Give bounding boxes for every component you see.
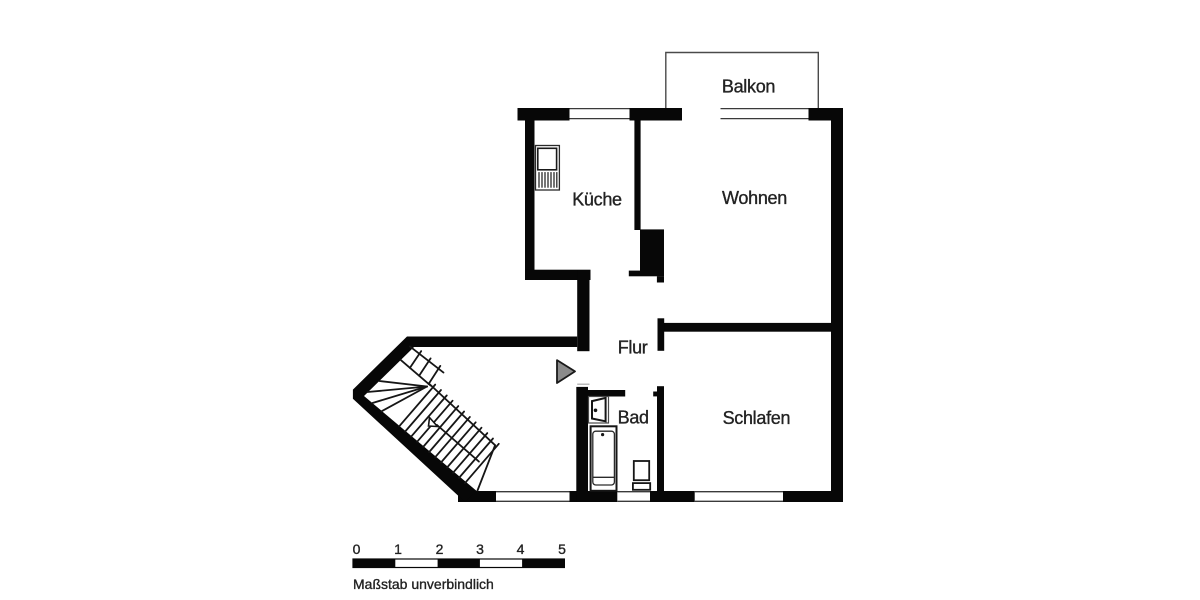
svg-text:0: 0: [353, 541, 361, 557]
svg-text:Küche: Küche: [572, 189, 622, 209]
svg-text:Wohnen: Wohnen: [722, 188, 787, 208]
svg-text:Flur: Flur: [618, 338, 648, 358]
svg-text:Balkon: Balkon: [722, 77, 775, 97]
svg-text:5: 5: [558, 541, 566, 557]
svg-text:2: 2: [436, 541, 444, 557]
svg-text:3: 3: [476, 541, 484, 557]
svg-text:Bad: Bad: [618, 407, 649, 427]
svg-text:Schlafen: Schlafen: [723, 408, 791, 428]
svg-text:4: 4: [517, 541, 525, 557]
svg-text:1: 1: [394, 541, 402, 557]
svg-text:Maßstab unverbindlich: Maßstab unverbindlich: [353, 576, 494, 592]
